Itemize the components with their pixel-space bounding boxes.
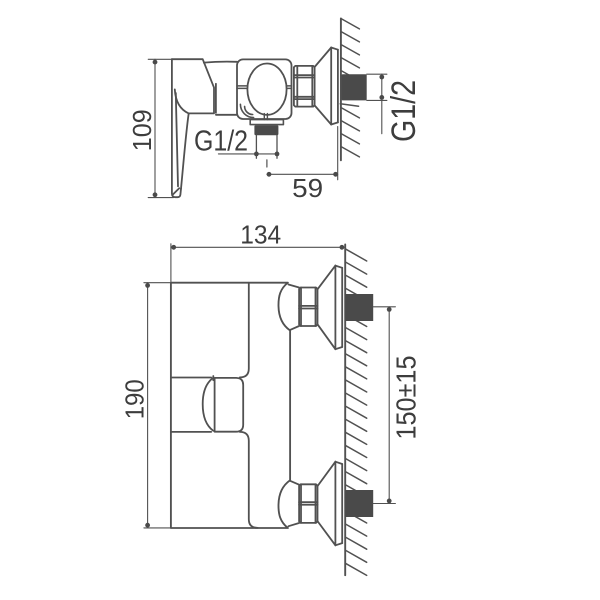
svg-text:109: 109 [127,109,157,151]
svg-text:190: 190 [120,379,150,419]
svg-text:G1/2: G1/2 [194,126,248,158]
svg-text:G1/2: G1/2 [385,80,423,142]
svg-text:150±15: 150±15 [391,356,422,440]
svg-text:59: 59 [292,173,323,203]
svg-text:134: 134 [240,220,281,250]
